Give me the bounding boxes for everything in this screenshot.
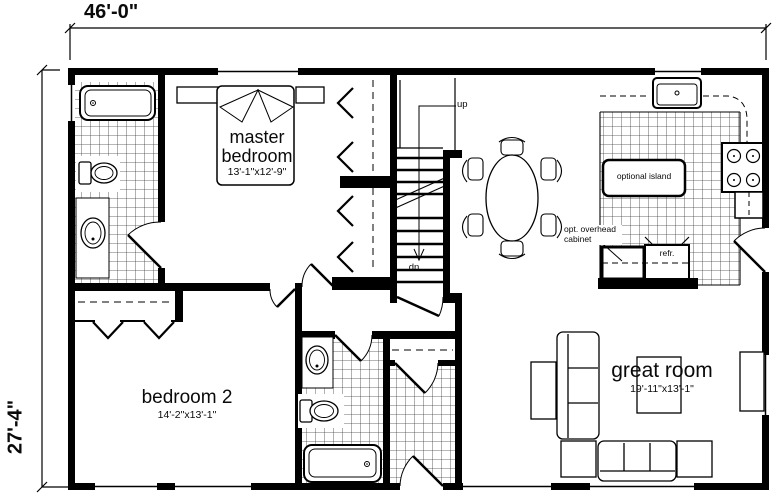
end-table bbox=[677, 441, 712, 477]
room-size: 14'-2"x13'-1" bbox=[142, 409, 233, 421]
room-name: great room bbox=[611, 360, 713, 382]
great-room-label: great room 19'-11"x13'-1" bbox=[611, 360, 713, 395]
room-size: 13'-1"x12'-9" bbox=[202, 166, 312, 178]
stairs-up-label: up bbox=[457, 99, 468, 110]
dining-table bbox=[486, 155, 538, 241]
height-dimension: 27'-4" bbox=[5, 400, 28, 454]
refrigerator-label: refr. bbox=[660, 249, 675, 259]
kitchen-counter bbox=[598, 278, 698, 289]
overhead-cabinet-label: opt. overhead cabinet bbox=[564, 225, 622, 245]
chair bbox=[468, 158, 483, 180]
loveseat bbox=[598, 441, 676, 481]
room-name: bedroom 2 bbox=[142, 388, 233, 408]
end-table bbox=[561, 441, 596, 477]
media-table bbox=[740, 352, 764, 411]
stairs-down-label: dn bbox=[409, 262, 420, 273]
chair bbox=[541, 158, 556, 180]
sofa bbox=[557, 332, 599, 439]
floor-plan: 46'-0" 27'-4" master bedroom 13'-1"x12'-… bbox=[0, 0, 781, 499]
nightstand bbox=[296, 87, 324, 103]
room-name: master bedroom bbox=[202, 128, 312, 165]
chair bbox=[468, 214, 483, 236]
room-size: 19'-11"x13'-1" bbox=[611, 383, 713, 395]
chair bbox=[501, 140, 523, 155]
console-table bbox=[531, 362, 556, 419]
nightstand bbox=[177, 87, 222, 103]
master-bedroom-label: master bedroom 13'-1"x12'-9" bbox=[202, 128, 312, 178]
bedroom2-label: bedroom 2 14'-2"x13'-1" bbox=[142, 388, 233, 421]
width-dimension: 46'-0" bbox=[84, 1, 138, 24]
optional-island-label: optional island bbox=[617, 172, 671, 182]
toilet bbox=[79, 162, 91, 184]
chair bbox=[541, 214, 556, 236]
chair bbox=[501, 241, 523, 256]
